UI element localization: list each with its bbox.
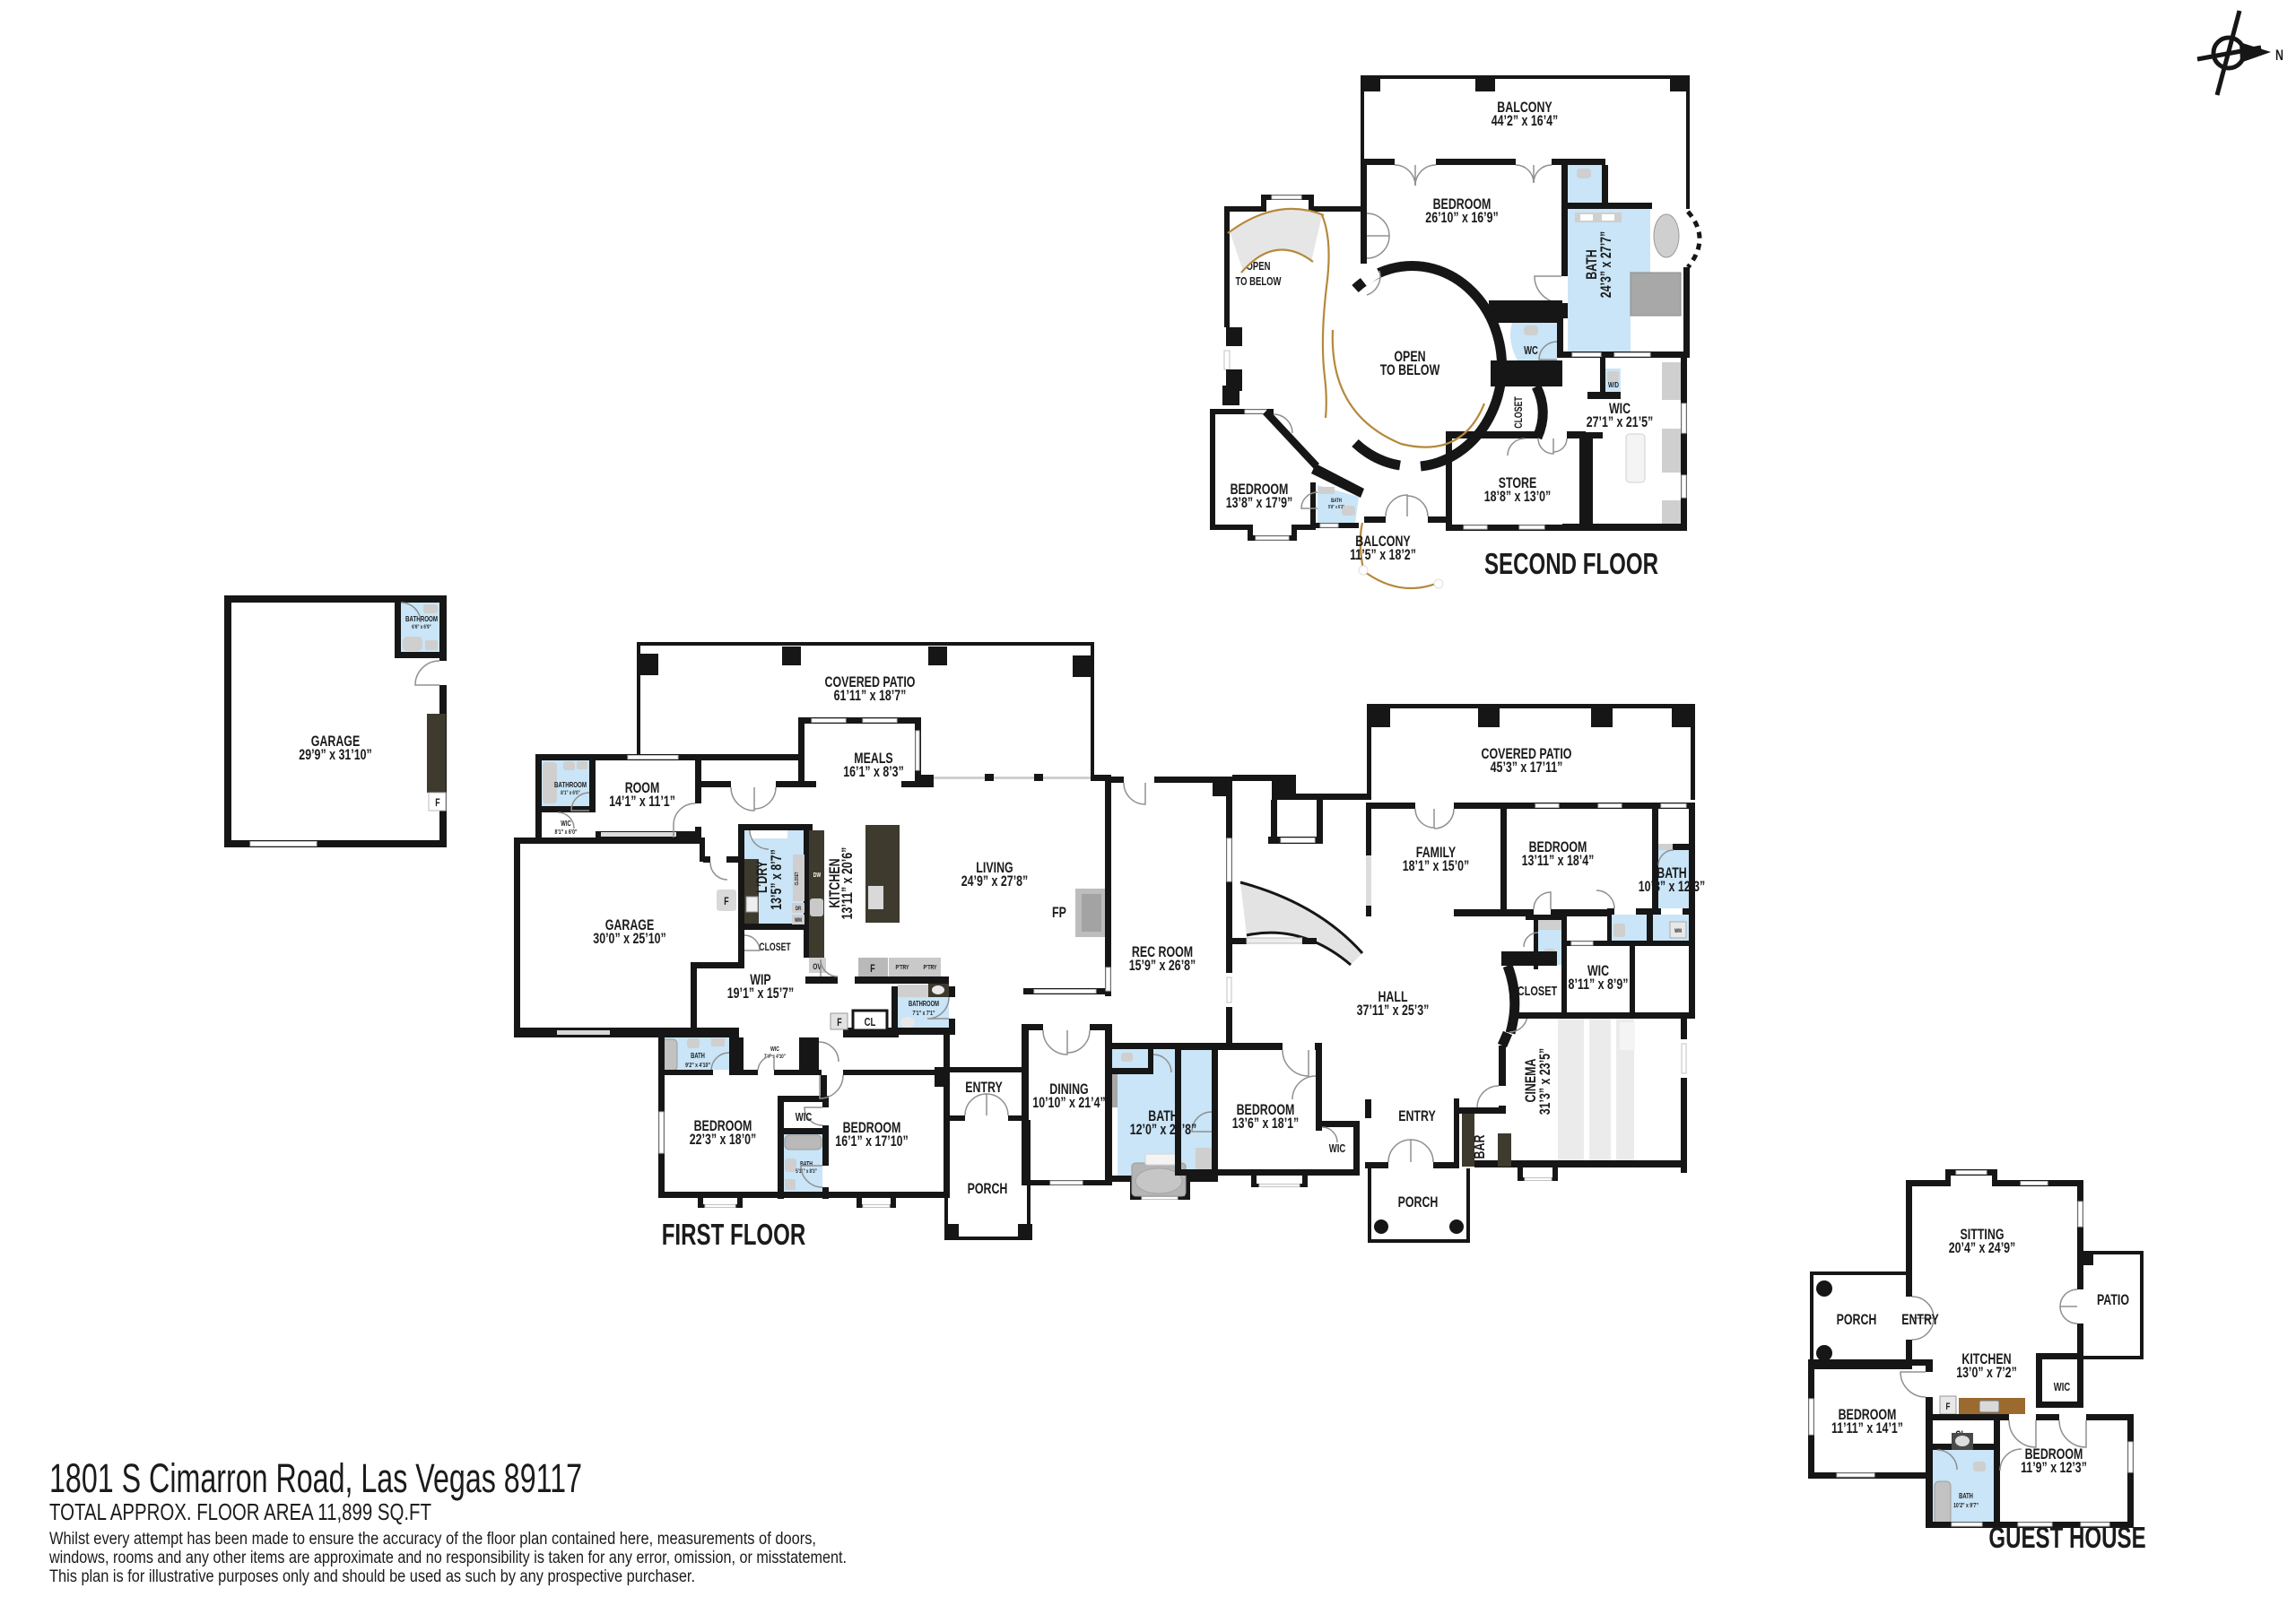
svg-text:31’3” x 23’5”: 31’3” x 23’5” [1536, 1048, 1553, 1115]
svg-text:24’3” x 27’7”: 24’3” x 27’7” [1597, 231, 1614, 299]
svg-text:BATHROOM: BATHROOM [405, 614, 438, 623]
svg-text:DR: DR [796, 907, 802, 912]
svg-text:13’11” x 18’4”: 13’11” x 18’4” [1522, 852, 1595, 869]
svg-text:F: F [837, 1016, 841, 1028]
svg-text:7’1” x 7’1”: 7’1” x 7’1” [913, 1011, 935, 1017]
svg-text:45’3” x 17’11”: 45’3” x 17’11” [1491, 759, 1563, 776]
svg-text:windows, rooms and any other i: windows, rooms and any other items are a… [48, 1549, 847, 1567]
svg-text:ENTRY: ENTRY [1398, 1107, 1436, 1124]
svg-text:PATIO: PATIO [2097, 1291, 2129, 1308]
svg-text:FP: FP [1052, 904, 1066, 921]
svg-text:13’5” x 8’7”: 13’5” x 8’7” [768, 849, 785, 910]
svg-text:37’11” x 25’3”: 37’11” x 25’3” [1357, 1002, 1430, 1019]
svg-text:F: F [724, 895, 728, 907]
svg-text:CLOSET: CLOSET [1518, 984, 1557, 999]
svg-text:N: N [2275, 47, 2283, 64]
svg-text:BATHROOM: BATHROOM [554, 780, 587, 789]
svg-text:WIC: WIC [2054, 1380, 2071, 1393]
svg-text:1801 S Cimarron Road, Las Vega: 1801 S Cimarron Road, Las Vegas 89117 [49, 1455, 582, 1501]
svg-text:SECOND FLOOR: SECOND FLOOR [1484, 547, 1658, 580]
svg-text:11’9” x 12’3”: 11’9” x 12’3” [2021, 1459, 2087, 1476]
svg-text:BATH: BATH [691, 1052, 705, 1060]
svg-text:BATH: BATH [800, 1161, 813, 1167]
svg-text:P’TRY: P’TRY [924, 965, 937, 971]
svg-text:Whilst every attempt has been: Whilst every attempt has been made to en… [49, 1530, 816, 1549]
svg-text:13’6” x 18’1”: 13’6” x 18’1” [1232, 1115, 1300, 1132]
svg-text:WIC: WIC [770, 1046, 779, 1053]
svg-text:44’2” x 16’4”: 44’2” x 16’4” [1492, 112, 1559, 129]
svg-text:WIC: WIC [561, 820, 571, 828]
svg-text:24’9” x 27’8”: 24’9” x 27’8” [961, 872, 1029, 890]
svg-text:13’11” x 20’6”: 13’11” x 20’6” [839, 847, 856, 920]
svg-text:10’2” x 9’7”: 10’2” x 9’7” [1953, 1503, 1979, 1509]
svg-text:22’3” x 18’0”: 22’3” x 18’0” [690, 1131, 757, 1148]
svg-text:16’1” x 17’10”: 16’1” x 17’10” [835, 1133, 908, 1150]
svg-text:WIC: WIC [1329, 1141, 1346, 1155]
svg-text:10’10” x 21’4”: 10’10” x 21’4” [1032, 1094, 1105, 1111]
svg-text:61’11” x 18’7”: 61’11” x 18’7” [834, 687, 907, 704]
svg-text:DW: DW [813, 872, 822, 879]
svg-text:F: F [870, 962, 874, 975]
svg-text:26’10” x 16’9”: 26’10” x 16’9” [1425, 209, 1498, 226]
svg-text:CLOSET: CLOSET [759, 941, 791, 953]
svg-text:BAR: BAR [1471, 1135, 1488, 1159]
svg-text:13’0” x 7’2”: 13’0” x 7’2” [1956, 1364, 2017, 1381]
svg-text:W/D: W/D [1608, 380, 1619, 389]
svg-text:TO BELOW: TO BELOW [1236, 274, 1283, 288]
svg-text:27’1” x 21’5”: 27’1” x 21’5” [1587, 413, 1654, 430]
svg-text:20’4” x 24’9”: 20’4” x 24’9” [1949, 1239, 2016, 1256]
svg-text:F: F [1946, 1402, 1951, 1412]
svg-text:PORCH: PORCH [1398, 1193, 1439, 1211]
svg-text:ENTRY: ENTRY [965, 1079, 1003, 1096]
svg-text:TO BELOW: TO BELOW [1380, 361, 1440, 378]
svg-text:29’9” x 31’10”: 29’9” x 31’10” [299, 746, 371, 763]
svg-text:19’1” x 15’7”: 19’1” x 15’7” [727, 985, 795, 1002]
svg-text:BATHROOM: BATHROOM [909, 1000, 939, 1008]
svg-text:WM: WM [795, 918, 802, 924]
svg-text:PORCH: PORCH [1837, 1311, 1877, 1328]
svg-text:12’0” x 20’8”: 12’0” x 20’8” [1130, 1121, 1197, 1138]
svg-text:11’5” x 18’2”: 11’5” x 18’2” [1350, 546, 1416, 563]
svg-text:CL: CL [865, 1015, 876, 1028]
svg-text:WIC: WIC [796, 1110, 813, 1124]
svg-text:BATH: BATH [1959, 1492, 1973, 1500]
svg-text:16’1” x 8’3”: 16’1” x 8’3” [843, 763, 904, 780]
svg-text:18’1” x 15’0”: 18’1” x 15’0” [1403, 857, 1470, 874]
svg-text:11’11” x 14’1”: 11’11” x 14’1” [1831, 1419, 1903, 1436]
svg-text:CLOSET: CLOSET [1512, 396, 1525, 429]
svg-text:F: F [435, 796, 439, 809]
svg-text:WC: WC [1524, 343, 1538, 357]
svg-text:5’8” x 6’3”: 5’8” x 6’3” [1328, 505, 1344, 510]
svg-text:30’0” x 25’10”: 30’0” x 25’10” [593, 930, 665, 947]
svg-text:ENTRY: ENTRY [1901, 1311, 1939, 1328]
svg-text:FIRST FLOOR: FIRST FLOOR [662, 1218, 806, 1251]
svg-text:14’1” x 11’1”: 14’1” x 11’1” [609, 793, 675, 810]
svg-text:8’1” x 6’0”: 8’1” x 6’0” [555, 829, 578, 836]
svg-text:CLOSET: CLOSET [795, 872, 800, 886]
svg-text:GUEST HOUSE: GUEST HOUSE [1988, 1521, 2145, 1554]
svg-text:PORCH: PORCH [968, 1180, 1008, 1197]
svg-text:WM: WM [1674, 929, 1682, 934]
svg-text:5’11” x 8’3”: 5’11” x 8’3” [796, 1169, 817, 1175]
svg-text:18’8” x 13’0”: 18’8” x 13’0” [1484, 488, 1552, 505]
svg-text:8’11” x 8’9”: 8’11” x 8’9” [1569, 976, 1629, 993]
svg-text:P’TRY: P’TRY [896, 965, 909, 971]
svg-text:13’8” x 17’9”: 13’8” x 17’9” [1226, 494, 1293, 511]
svg-text:9’2” x 4’10”: 9’2” x 4’10” [685, 1063, 710, 1069]
svg-text:This plan is for illustrative: This plan is for illustrative purposes o… [49, 1567, 695, 1586]
svg-text:BATH: BATH [1331, 499, 1342, 504]
svg-text:8’1” x 6’0”: 8’1” x 6’0” [561, 791, 579, 796]
svg-text:6’6” x 6’9”: 6’6” x 6’9” [412, 625, 430, 630]
svg-text:15’9” x 26’8”: 15’9” x 26’8” [1129, 957, 1196, 974]
svg-text:TOTAL APPROX. FLOOR AREA 11,89: TOTAL APPROX. FLOOR AREA 11,899 SQ.FT [49, 1498, 431, 1525]
svg-text:10’8” x 12’3”: 10’8” x 12’3” [1639, 878, 1706, 895]
